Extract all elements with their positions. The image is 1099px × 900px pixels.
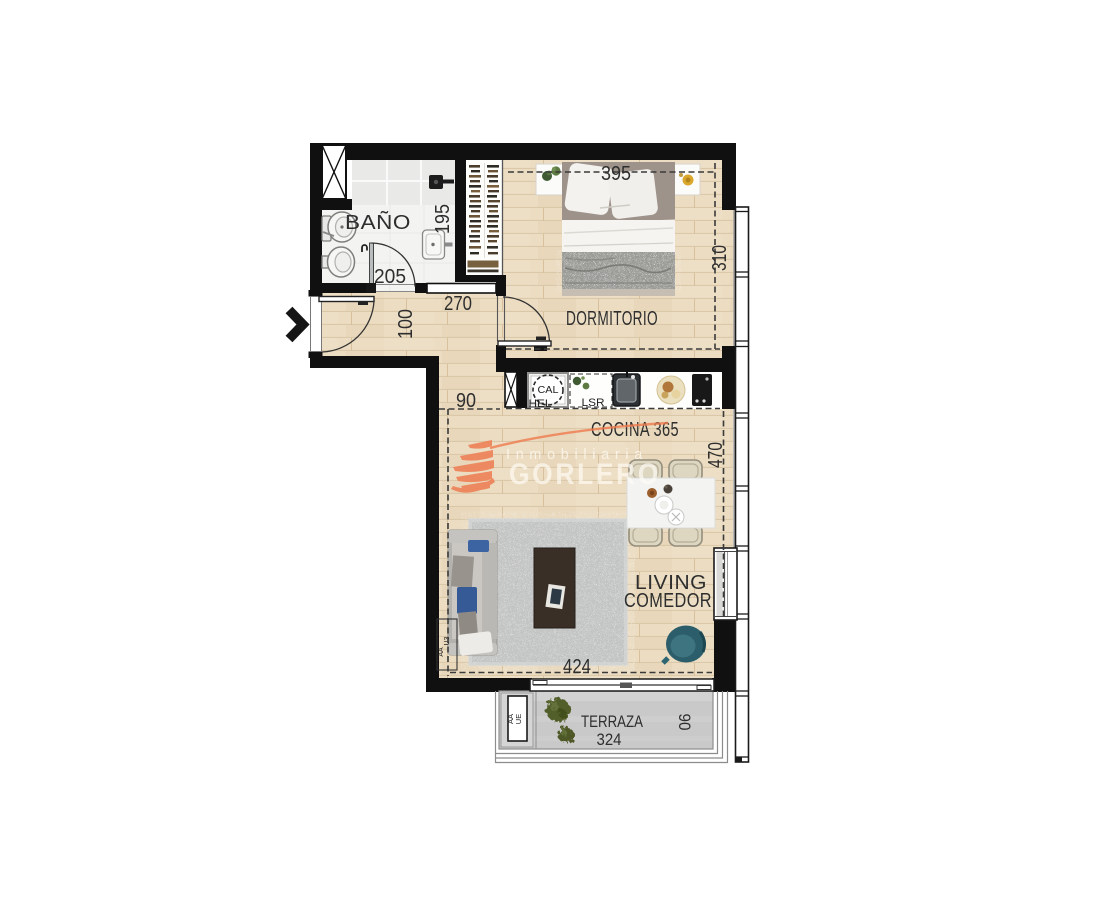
svg-text:100: 100	[395, 309, 417, 339]
svg-text:324: 324	[597, 730, 622, 749]
svg-text:LSR: LSR	[582, 397, 605, 409]
svg-text:TERRAZA: TERRAZA	[581, 712, 644, 731]
svg-text:CAL: CAL	[538, 384, 559, 396]
svg-text:DORMITORIO: DORMITORIO	[566, 308, 658, 330]
svg-text:GORLERO: GORLERO	[509, 458, 661, 491]
svg-text:BAÑO: BAÑO	[345, 210, 411, 234]
svg-text:470: 470	[705, 442, 727, 468]
svg-text:UE: UE	[514, 714, 523, 724]
svg-text:395: 395	[601, 163, 631, 185]
svg-text:AA: AA	[438, 647, 445, 657]
svg-text:205: 205	[374, 266, 406, 288]
svg-text:90: 90	[456, 390, 476, 412]
svg-text:310: 310	[709, 245, 731, 271]
svg-text:270: 270	[444, 293, 472, 315]
svg-text:90: 90	[675, 714, 694, 731]
svg-text:424: 424	[563, 656, 591, 678]
svg-text:COMEDOR: COMEDOR	[624, 590, 712, 612]
svg-text:195: 195	[432, 204, 454, 234]
